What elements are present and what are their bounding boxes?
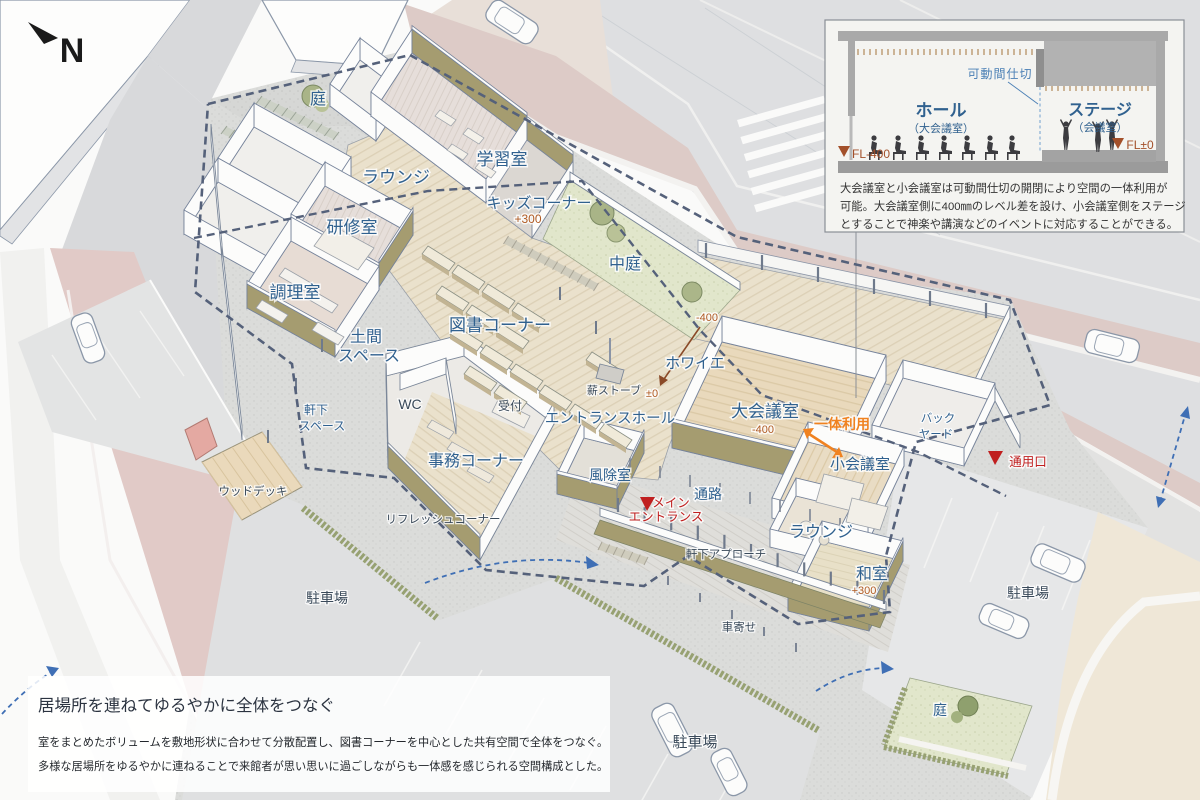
svg-text:駐車場: 駐車場	[1007, 585, 1049, 601]
svg-text:スペース: スペース	[299, 419, 346, 433]
svg-text:居場所を連ねてゆるやかに全体をつなぐ: 居場所を連ねてゆるやかに全体をつなぐ	[38, 696, 335, 715]
svg-text:キッズコーナー: キッズコーナー	[486, 195, 591, 212]
svg-text:中庭: 中庭	[609, 255, 641, 273]
svg-text:和室: 和室	[856, 565, 888, 583]
svg-text:ヤード: ヤード	[919, 429, 954, 441]
svg-text:FL-400: FL-400	[852, 147, 890, 161]
svg-text:（大会議室）: （大会議室）	[908, 121, 974, 135]
svg-text:ウッドデッキ: ウッドデッキ	[219, 484, 288, 498]
svg-text:-400: -400	[696, 312, 718, 324]
svg-text:一体利用: 一体利用	[814, 416, 870, 432]
svg-text:（会議室）: （会議室）	[1073, 120, 1128, 134]
svg-text:車寄せ: 車寄せ	[722, 620, 757, 634]
svg-text:図書コーナー: 図書コーナー	[449, 316, 551, 335]
svg-text:ラウンジ: ラウンジ	[362, 168, 430, 187]
svg-text:土間: 土間	[350, 328, 382, 346]
svg-text:可能。大会議室側に400㎜のレベル差を設け、小会議室側をステ: 可能。大会議室側に400㎜のレベル差を設け、小会議室側をステージ	[840, 199, 1186, 213]
svg-text:+300: +300	[514, 212, 541, 226]
svg-text:庭: 庭	[310, 90, 326, 108]
svg-text:受付: 受付	[498, 399, 522, 413]
svg-text:学習室: 学習室	[477, 150, 528, 169]
svg-text:バック: バック	[921, 412, 956, 425]
svg-text:風除室: 風除室	[589, 467, 631, 483]
svg-text:大会議室と小会議室は可動間仕切の開閉により空間の一体利用が: 大会議室と小会議室は可動間仕切の開閉により空間の一体利用が	[840, 181, 1167, 195]
svg-text:ホール: ホール	[916, 101, 967, 120]
svg-text:スペース: スペース	[338, 348, 400, 365]
svg-text:メイン: メイン	[652, 496, 690, 510]
svg-text:リフレッシュコーナー: リフレッシュコーナー	[386, 513, 501, 526]
svg-text:軒下: 軒下	[304, 403, 328, 417]
svg-text:研修室: 研修室	[327, 218, 378, 237]
svg-text:エントランスホール: エントランスホール	[545, 411, 675, 427]
svg-text:多様な居場所をゆるやかに連ねることで来館者が思い思いに過ごし: 多様な居場所をゆるやかに連ねることで来館者が思い思いに過ごしながらも一体感を感じ…	[38, 759, 608, 773]
svg-text:駐車場: 駐車場	[306, 590, 348, 606]
svg-text:小会議室: 小会議室	[830, 455, 890, 473]
svg-text:薪ストーブ: 薪ストーブ	[587, 383, 641, 397]
svg-text:WC: WC	[398, 396, 421, 412]
svg-text:-400: -400	[752, 424, 774, 436]
svg-text:エントランス: エントランス	[629, 510, 704, 524]
svg-text:事務コーナー: 事務コーナー	[428, 452, 524, 470]
svg-text:大会議室: 大会議室	[731, 402, 799, 421]
svg-text:FL±0: FL±0	[1126, 138, 1154, 152]
svg-text:軒下アプローチ: 軒下アプローチ	[686, 548, 767, 561]
svg-text:ラウンジ: ラウンジ	[789, 523, 853, 541]
svg-text:庭: 庭	[933, 702, 947, 718]
svg-text:+300: +300	[852, 585, 877, 597]
svg-text:とすることで神楽や講演などのイベントに対応することができる。: とすることで神楽や講演などのイベントに対応することができる。	[840, 217, 1178, 231]
svg-text:ステージ: ステージ	[1068, 102, 1132, 119]
svg-text:通路: 通路	[694, 486, 722, 502]
svg-text:N: N	[60, 32, 85, 70]
svg-text:調理室: 調理室	[270, 283, 321, 302]
svg-text:ホワイエ: ホワイエ	[665, 355, 725, 372]
svg-text:駐車場: 駐車場	[672, 734, 717, 751]
svg-text:通用口: 通用口	[1009, 455, 1047, 469]
svg-text:±0: ±0	[646, 388, 658, 400]
svg-text:室をまとめたボリュームを敷地形状に合わせて分散配置し、図書コ: 室をまとめたボリュームを敷地形状に合わせて分散配置し、図書コーナーを中心とした共…	[38, 735, 608, 749]
svg-text:可動間仕切: 可動間仕切	[967, 67, 1032, 81]
